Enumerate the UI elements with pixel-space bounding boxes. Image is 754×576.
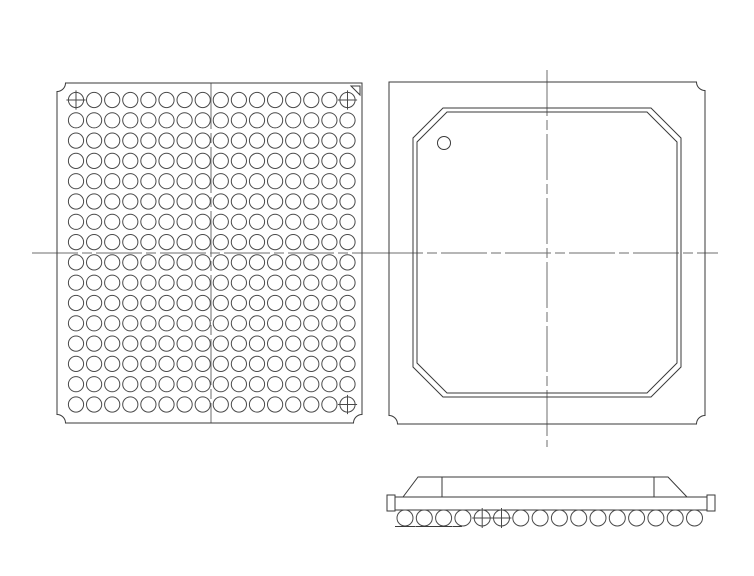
solder-ball (213, 336, 228, 351)
solder-ball (141, 397, 156, 412)
solder-ball (213, 113, 228, 128)
solder-ball (159, 377, 174, 392)
solder-ball (87, 316, 102, 331)
solder-ball (231, 214, 246, 229)
solder-ball (105, 255, 120, 270)
solder-ball (340, 113, 355, 128)
solder-ball (322, 174, 337, 189)
solder-ball-profile (590, 510, 606, 526)
solder-ball (213, 275, 228, 290)
solder-ball (177, 92, 192, 107)
solder-ball (105, 377, 120, 392)
solder-ball (249, 153, 264, 168)
solder-ball (249, 316, 264, 331)
solder-ball (322, 397, 337, 412)
solder-ball (304, 92, 319, 107)
solder-ball (322, 194, 337, 209)
solder-ball (213, 235, 228, 250)
solder-ball (87, 153, 102, 168)
solder-ball (268, 174, 283, 189)
solder-ball (304, 174, 319, 189)
solder-ball (249, 255, 264, 270)
solder-ball (105, 214, 120, 229)
solder-ball (87, 133, 102, 148)
solder-ball (213, 316, 228, 331)
solder-ball (286, 356, 301, 371)
solder-ball (231, 92, 246, 107)
solder-ball (87, 397, 102, 412)
solder-ball (286, 92, 301, 107)
solder-ball (213, 194, 228, 209)
solder-ball (340, 295, 355, 310)
solder-ball (249, 214, 264, 229)
solder-ball (141, 235, 156, 250)
solder-ball (268, 214, 283, 229)
solder-ball (340, 174, 355, 189)
solder-ball (141, 377, 156, 392)
solder-ball (141, 316, 156, 331)
solder-ball (105, 356, 120, 371)
solder-ball (105, 174, 120, 189)
solder-ball (213, 214, 228, 229)
top-view-mold-cap (377, 70, 718, 447)
bga-package-drawing (0, 0, 754, 576)
solder-ball (159, 133, 174, 148)
solder-ball (87, 336, 102, 351)
solder-ball (68, 174, 83, 189)
solder-ball (340, 235, 355, 250)
solder-ball (177, 194, 192, 209)
solder-ball (105, 316, 120, 331)
solder-ball (268, 295, 283, 310)
solder-ball (213, 397, 228, 412)
solder-ball (159, 275, 174, 290)
solder-ball (123, 397, 138, 412)
solder-ball (268, 92, 283, 107)
solder-ball-profile (532, 510, 548, 526)
solder-ball (68, 397, 83, 412)
solder-ball (268, 153, 283, 168)
solder-ball (322, 336, 337, 351)
solder-ball (340, 153, 355, 168)
substrate-body (395, 497, 707, 510)
solder-ball (249, 397, 264, 412)
solder-ball-profile (629, 510, 645, 526)
solder-ball (141, 174, 156, 189)
solder-ball (231, 153, 246, 168)
solder-ball (141, 336, 156, 351)
solder-ball (322, 316, 337, 331)
solder-ball (268, 377, 283, 392)
solder-ball (322, 235, 337, 250)
solder-ball (159, 295, 174, 310)
solder-ball (177, 174, 192, 189)
solder-ball (231, 316, 246, 331)
solder-ball (268, 113, 283, 128)
solder-ball (159, 194, 174, 209)
solder-ball (68, 336, 83, 351)
solder-ball (268, 356, 283, 371)
solder-ball (340, 275, 355, 290)
solder-ball (304, 356, 319, 371)
solder-ball (141, 113, 156, 128)
solder-ball (286, 153, 301, 168)
solder-ball (286, 377, 301, 392)
solder-ball (286, 255, 301, 270)
solder-ball (87, 92, 102, 107)
solder-ball (68, 316, 83, 331)
solder-ball (123, 377, 138, 392)
solder-ball (177, 214, 192, 229)
solder-ball (286, 235, 301, 250)
solder-ball (159, 235, 174, 250)
solder-ball (195, 336, 210, 351)
solder-ball (159, 92, 174, 107)
solder-ball (322, 255, 337, 270)
solder-ball (304, 235, 319, 250)
solder-ball (340, 214, 355, 229)
solder-ball (304, 113, 319, 128)
mold-cap-profile (403, 477, 687, 497)
solder-ball-profile (667, 510, 683, 526)
solder-ball (177, 377, 192, 392)
solder-ball (105, 235, 120, 250)
solder-ball (141, 356, 156, 371)
solder-ball (249, 377, 264, 392)
solder-ball (286, 194, 301, 209)
solder-ball (286, 336, 301, 351)
solder-ball (159, 113, 174, 128)
solder-ball (231, 113, 246, 128)
solder-ball (141, 275, 156, 290)
solder-ball (231, 336, 246, 351)
solder-ball (105, 113, 120, 128)
solder-ball (141, 92, 156, 107)
solder-ball (195, 113, 210, 128)
solder-ball (213, 377, 228, 392)
solder-ball (213, 356, 228, 371)
solder-ball (177, 153, 192, 168)
solder-ball-profile (609, 510, 625, 526)
solder-ball (123, 275, 138, 290)
solder-ball (87, 275, 102, 290)
solder-ball (195, 377, 210, 392)
solder-ball-profile (436, 510, 452, 526)
solder-ball (286, 214, 301, 229)
solder-ball-profile (455, 510, 471, 526)
solder-ball (268, 336, 283, 351)
solder-ball (87, 295, 102, 310)
solder-ball (177, 255, 192, 270)
solder-ball (286, 295, 301, 310)
solder-ball (322, 153, 337, 168)
solder-ball (141, 133, 156, 148)
solder-ball (231, 174, 246, 189)
solder-ball (213, 295, 228, 310)
solder-ball (304, 153, 319, 168)
solder-ball (213, 174, 228, 189)
solder-ball (68, 194, 83, 209)
solder-ball (68, 113, 83, 128)
solder-ball (123, 133, 138, 148)
solder-ball (177, 235, 192, 250)
solder-ball (159, 397, 174, 412)
solder-ball (68, 214, 83, 229)
solder-ball (195, 153, 210, 168)
solder-ball (195, 133, 210, 148)
solder-ball (268, 397, 283, 412)
solder-ball (159, 153, 174, 168)
solder-ball (231, 275, 246, 290)
solder-ball-profile (416, 510, 432, 526)
solder-ball (304, 397, 319, 412)
solder-ball (123, 153, 138, 168)
solder-ball-profile (513, 510, 529, 526)
solder-ball (304, 377, 319, 392)
solder-ball (340, 255, 355, 270)
solder-ball (159, 316, 174, 331)
solder-ball-profile (648, 510, 664, 526)
pin1-dot-marker (438, 137, 451, 150)
solder-ball (304, 133, 319, 148)
solder-ball (268, 194, 283, 209)
solder-ball (123, 316, 138, 331)
solder-ball (195, 255, 210, 270)
solder-ball (286, 174, 301, 189)
solder-ball (87, 356, 102, 371)
solder-ball (68, 295, 83, 310)
solder-ball (177, 133, 192, 148)
solder-ball (159, 174, 174, 189)
solder-ball (177, 275, 192, 290)
solder-ball (123, 356, 138, 371)
solder-ball-profile (397, 510, 413, 526)
solder-ball (304, 336, 319, 351)
solder-ball (177, 336, 192, 351)
solder-ball (87, 214, 102, 229)
solder-ball (123, 255, 138, 270)
solder-ball (105, 92, 120, 107)
solder-ball (177, 113, 192, 128)
solder-ball (304, 255, 319, 270)
solder-ball (231, 397, 246, 412)
solder-ball (213, 153, 228, 168)
solder-ball-profile (687, 510, 703, 526)
solder-ball (231, 235, 246, 250)
solder-ball (322, 133, 337, 148)
solder-ball (159, 336, 174, 351)
solder-ball (123, 235, 138, 250)
solder-ball (68, 153, 83, 168)
solder-ball (123, 194, 138, 209)
solder-ball (141, 214, 156, 229)
solder-ball (87, 255, 102, 270)
solder-ball (249, 174, 264, 189)
solder-ball (340, 377, 355, 392)
solder-ball (249, 113, 264, 128)
solder-ball (105, 275, 120, 290)
solder-ball (304, 295, 319, 310)
solder-ball (213, 255, 228, 270)
solder-ball (123, 174, 138, 189)
solder-ball (268, 275, 283, 290)
solder-ball (159, 356, 174, 371)
solder-ball (195, 316, 210, 331)
solder-ball (249, 133, 264, 148)
solder-ball (322, 92, 337, 107)
solder-ball (268, 235, 283, 250)
solder-ball (68, 133, 83, 148)
solder-ball (195, 275, 210, 290)
solder-ball (231, 194, 246, 209)
solder-ball (123, 113, 138, 128)
solder-ball (249, 275, 264, 290)
solder-ball (87, 174, 102, 189)
solder-ball (231, 377, 246, 392)
solder-ball (195, 397, 210, 412)
solder-ball (249, 295, 264, 310)
solder-ball (213, 133, 228, 148)
solder-ball (105, 295, 120, 310)
solder-ball (340, 316, 355, 331)
bottom-view-ball-grid (32, 83, 377, 423)
solder-ball (249, 336, 264, 351)
side-view-profile (387, 477, 715, 528)
solder-ball (195, 295, 210, 310)
solder-ball (249, 235, 264, 250)
solder-ball (340, 336, 355, 351)
solder-ball (249, 92, 264, 107)
solder-ball (141, 153, 156, 168)
solder-ball (123, 92, 138, 107)
solder-ball (304, 194, 319, 209)
solder-ball (195, 92, 210, 107)
solder-ball (322, 295, 337, 310)
solder-ball (68, 235, 83, 250)
solder-ball (249, 356, 264, 371)
solder-ball (286, 316, 301, 331)
solder-ball (177, 397, 192, 412)
solder-ball (231, 295, 246, 310)
solder-ball (268, 255, 283, 270)
solder-ball (159, 255, 174, 270)
solder-ball (177, 356, 192, 371)
solder-ball (68, 275, 83, 290)
solder-ball (68, 377, 83, 392)
solder-ball-profile (551, 510, 567, 526)
solder-ball (68, 356, 83, 371)
technical-drawing-canvas (0, 0, 754, 576)
solder-ball (195, 194, 210, 209)
solder-ball (322, 275, 337, 290)
solder-ball (286, 397, 301, 412)
solder-ball (68, 255, 83, 270)
solder-ball (268, 316, 283, 331)
solder-ball (322, 214, 337, 229)
solder-ball (231, 133, 246, 148)
solder-ball (105, 133, 120, 148)
solder-ball (340, 356, 355, 371)
solder-ball (231, 356, 246, 371)
solder-ball (286, 133, 301, 148)
solder-ball (304, 214, 319, 229)
solder-ball (231, 255, 246, 270)
solder-ball (286, 275, 301, 290)
solder-ball (177, 295, 192, 310)
solder-ball (249, 194, 264, 209)
solder-ball (195, 214, 210, 229)
solder-ball (177, 316, 192, 331)
solder-ball (105, 194, 120, 209)
solder-ball (87, 235, 102, 250)
solder-ball (304, 275, 319, 290)
solder-ball (159, 214, 174, 229)
solder-ball (268, 133, 283, 148)
solder-ball (322, 113, 337, 128)
solder-ball (304, 316, 319, 331)
solder-ball (322, 377, 337, 392)
solder-ball (141, 295, 156, 310)
solder-ball (123, 295, 138, 310)
solder-ball (105, 336, 120, 351)
solder-ball (340, 194, 355, 209)
solder-ball-profile (571, 510, 587, 526)
solder-ball (286, 113, 301, 128)
solder-ball (195, 235, 210, 250)
solder-ball (322, 356, 337, 371)
solder-ball (195, 174, 210, 189)
solder-ball (141, 255, 156, 270)
substrate-left-tab (387, 495, 395, 511)
solder-ball (141, 194, 156, 209)
solder-ball (123, 214, 138, 229)
solder-ball (87, 113, 102, 128)
solder-ball (105, 397, 120, 412)
solder-ball (123, 336, 138, 351)
substrate-right-tab (707, 495, 715, 511)
solder-ball (87, 377, 102, 392)
solder-ball (87, 194, 102, 209)
solder-ball (213, 92, 228, 107)
solder-ball (340, 133, 355, 148)
solder-ball (195, 356, 210, 371)
solder-ball (105, 153, 120, 168)
